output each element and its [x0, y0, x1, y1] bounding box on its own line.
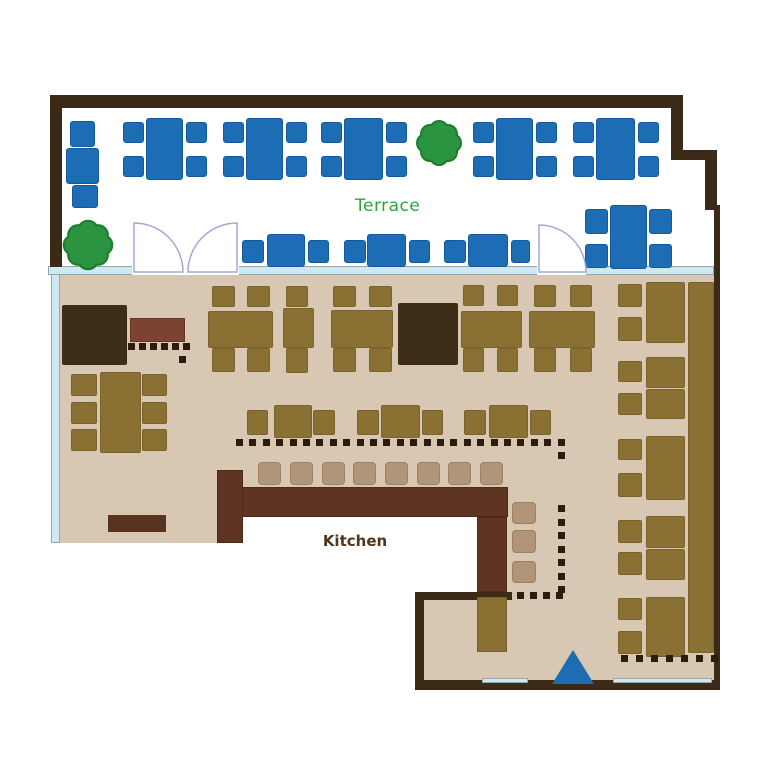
bottom-ledge	[108, 515, 166, 532]
partition-dots-main	[410, 439, 417, 446]
terrace-chair	[444, 240, 466, 263]
booth-table	[646, 597, 685, 657]
partition-dots-bottom	[556, 592, 563, 599]
terrace-table	[344, 118, 383, 180]
terrace-chair	[511, 240, 530, 263]
partition-dots-main	[316, 439, 323, 446]
partition-dots-vertical	[558, 559, 565, 566]
dining-chair	[422, 410, 443, 435]
dining-chair	[463, 348, 484, 372]
bench-dot-row	[183, 343, 190, 350]
terrace-table	[246, 118, 283, 180]
dining-chair	[212, 348, 235, 372]
terrace-chair	[70, 121, 95, 147]
booth-table	[646, 516, 685, 548]
partition-dots-main	[343, 439, 350, 446]
terrace-chair	[573, 156, 594, 177]
dining-chair	[497, 285, 518, 306]
partition-dots-vertical	[558, 519, 565, 526]
dining-chair	[247, 410, 268, 435]
booth-chair	[618, 552, 642, 575]
dining-table	[529, 311, 595, 348]
terrace-table	[468, 234, 508, 267]
terrace-chair	[321, 122, 342, 143]
terrace-table	[146, 118, 183, 180]
terrace-table	[610, 205, 647, 269]
terrace-chair	[308, 240, 329, 263]
partition-dots-main	[397, 439, 404, 446]
partition-dots-right	[666, 655, 673, 662]
dining-table	[283, 308, 314, 348]
terrace-chair	[72, 185, 98, 208]
bench-dot-row	[139, 343, 146, 350]
dining-chair	[463, 285, 484, 306]
dining-chair	[142, 402, 167, 424]
terrace-double-door-right-leaf	[188, 223, 237, 272]
terrace-table	[66, 148, 99, 184]
entrance-glass	[613, 678, 712, 683]
partition-dots-right	[696, 655, 703, 662]
bench-dot-row	[150, 343, 157, 350]
booth-chair	[618, 439, 642, 460]
terrace-table	[496, 118, 533, 180]
bench-dot-row	[172, 343, 179, 350]
terrace-chair	[473, 156, 494, 177]
counter-bar	[242, 487, 508, 517]
terrace-chair	[186, 122, 207, 143]
terrace-chair	[649, 244, 672, 268]
partition-dot-corner	[558, 452, 565, 459]
terrace-single-door	[539, 225, 586, 272]
counter-stool	[417, 462, 440, 485]
dining-chair	[142, 429, 167, 451]
counter-stool	[512, 561, 536, 583]
booth-table	[646, 389, 685, 419]
wall-right-mid	[705, 150, 717, 210]
partition-dots-main	[357, 439, 364, 446]
terrace-chair	[649, 209, 672, 234]
tree-icon	[65, 222, 111, 268]
partition-dots-main	[236, 439, 243, 446]
partition-dots-right	[621, 655, 628, 662]
window-band-left	[51, 266, 60, 543]
partition-dots-main	[558, 439, 565, 446]
service-station	[477, 597, 507, 652]
restaurant-floor-plan: Terrace カウンター Kitchen	[0, 0, 780, 780]
partition-dots-main	[437, 439, 444, 446]
divider-door-gap	[537, 266, 586, 275]
bench-dot-row	[128, 343, 135, 350]
partition-dots-main	[383, 439, 390, 446]
counter-stool	[512, 502, 536, 524]
counter-stool	[290, 462, 313, 485]
partition-dots-main	[424, 439, 431, 446]
booth-table	[646, 549, 685, 580]
partition-dots-vertical	[558, 532, 565, 539]
booth-bench	[688, 282, 714, 653]
dining-table	[100, 372, 141, 453]
terrace-chair	[186, 156, 207, 177]
terrace-chair	[286, 122, 307, 143]
wall-left	[50, 95, 62, 267]
dining-chair	[333, 348, 356, 372]
partition-dots-main	[303, 439, 310, 446]
partition-dots-main	[249, 439, 256, 446]
dining-table	[489, 405, 528, 438]
dining-chair	[369, 348, 392, 372]
dining-chair	[497, 348, 518, 372]
counter-stool	[512, 530, 536, 553]
terrace-chair	[638, 156, 659, 177]
dining-table	[461, 311, 522, 348]
terrace-chair	[123, 156, 144, 177]
terrace-chair	[585, 209, 608, 234]
booth-chair	[618, 317, 642, 341]
booth-chair	[618, 631, 642, 654]
booth-table	[646, 436, 685, 500]
dining-chair	[247, 348, 270, 372]
dining-chair	[530, 410, 551, 435]
dining-chair	[286, 348, 308, 373]
dining-chair	[71, 374, 97, 396]
partition-dots-main	[477, 439, 484, 446]
service-bench	[130, 318, 185, 342]
booth-chair	[618, 393, 642, 415]
terrace-table	[267, 234, 305, 267]
dining-chair	[534, 348, 556, 372]
divider-door-gap	[132, 266, 239, 275]
terrace-chair	[344, 240, 366, 263]
partition-dots-vertical	[558, 505, 565, 512]
dining-chair	[286, 286, 308, 307]
terrace-chair	[536, 122, 557, 143]
partition-dots-main	[450, 439, 457, 446]
partition-dots-vertical	[558, 573, 565, 580]
partition-dots-bottom	[530, 592, 537, 599]
counter-stool	[322, 462, 345, 485]
counter-stool	[353, 462, 376, 485]
partition-dots-right	[651, 655, 658, 662]
terrace-table	[596, 118, 635, 180]
bench-dot-row	[161, 343, 168, 350]
wall-right-upper	[671, 95, 683, 157]
terrace-chair	[536, 156, 557, 177]
dining-chair	[570, 348, 592, 372]
booth-table	[646, 357, 685, 388]
dining-chair	[142, 374, 167, 396]
terrace-chair	[223, 122, 244, 143]
dining-chair	[71, 402, 97, 424]
private-room-block	[62, 305, 127, 365]
terrace-chair	[573, 122, 594, 143]
partition-dots-main	[544, 439, 551, 446]
dining-chair	[534, 285, 556, 307]
terrace-chair	[585, 244, 608, 268]
dining-chair	[357, 410, 379, 435]
dining-table	[274, 405, 312, 438]
terrace-chair	[223, 156, 244, 177]
terrace-chair	[386, 122, 407, 143]
partition-dots-main	[370, 439, 377, 446]
terrace-table	[367, 234, 406, 267]
terrace-label: Terrace	[355, 196, 420, 216]
dining-chair	[247, 286, 270, 307]
partition-dots-main	[504, 439, 511, 446]
partition-dots-main	[276, 439, 283, 446]
partition-dots-vertical	[558, 546, 565, 553]
partition-dots-main	[263, 439, 270, 446]
partition-dots-main	[464, 439, 471, 446]
kitchen-label: Kitchen	[300, 532, 410, 550]
partition-dots-right	[636, 655, 643, 662]
dining-chair	[369, 286, 392, 307]
terrace-chair	[409, 240, 430, 263]
dining-chair	[570, 285, 592, 307]
partition-dots-main	[290, 439, 297, 446]
tree-icon	[418, 122, 460, 164]
booth-chair	[618, 284, 642, 307]
dining-table	[381, 405, 420, 438]
partition-dots-bottom	[517, 592, 524, 599]
dining-chair	[464, 410, 486, 435]
terrace-double-door-left-leaf	[134, 223, 183, 272]
wall-kitchen-corner-v	[415, 592, 424, 687]
partition-dots-right	[711, 655, 718, 662]
bench-dot	[179, 356, 186, 363]
dining-chair	[313, 410, 335, 435]
booth-table	[646, 282, 685, 343]
partition-dots-main	[531, 439, 538, 446]
booth-chair	[618, 361, 642, 382]
terrace-chair	[386, 156, 407, 177]
wall-right-thin	[714, 205, 720, 690]
partition-dots-main	[491, 439, 498, 446]
booth-chair	[618, 520, 642, 543]
terrace-chair	[123, 122, 144, 143]
counter-left-stub	[217, 470, 243, 543]
counter-stool	[258, 462, 281, 485]
partition-dots-bottom	[543, 592, 550, 599]
booth-chair	[618, 598, 642, 620]
partition-dots-main	[330, 439, 337, 446]
partition-dots-main	[517, 439, 524, 446]
booth-chair	[618, 473, 642, 497]
partition-dots-right	[681, 655, 688, 662]
terrace-chair	[242, 240, 264, 263]
terrace-chair	[473, 122, 494, 143]
private-room-block	[398, 303, 458, 365]
wall-top	[50, 95, 683, 108]
counter-right-stub	[477, 517, 507, 592]
terrace-chair	[638, 122, 659, 143]
entrance-glass	[482, 678, 528, 683]
dining-chair	[212, 286, 235, 307]
terrace-chair	[321, 156, 342, 177]
terrace-chair	[286, 156, 307, 177]
counter-stool	[385, 462, 408, 485]
counter-stool	[480, 462, 503, 485]
dining-table	[208, 311, 273, 348]
dining-table	[331, 310, 393, 348]
dining-chair	[71, 429, 97, 451]
dining-chair	[333, 286, 356, 307]
counter-stool	[448, 462, 471, 485]
